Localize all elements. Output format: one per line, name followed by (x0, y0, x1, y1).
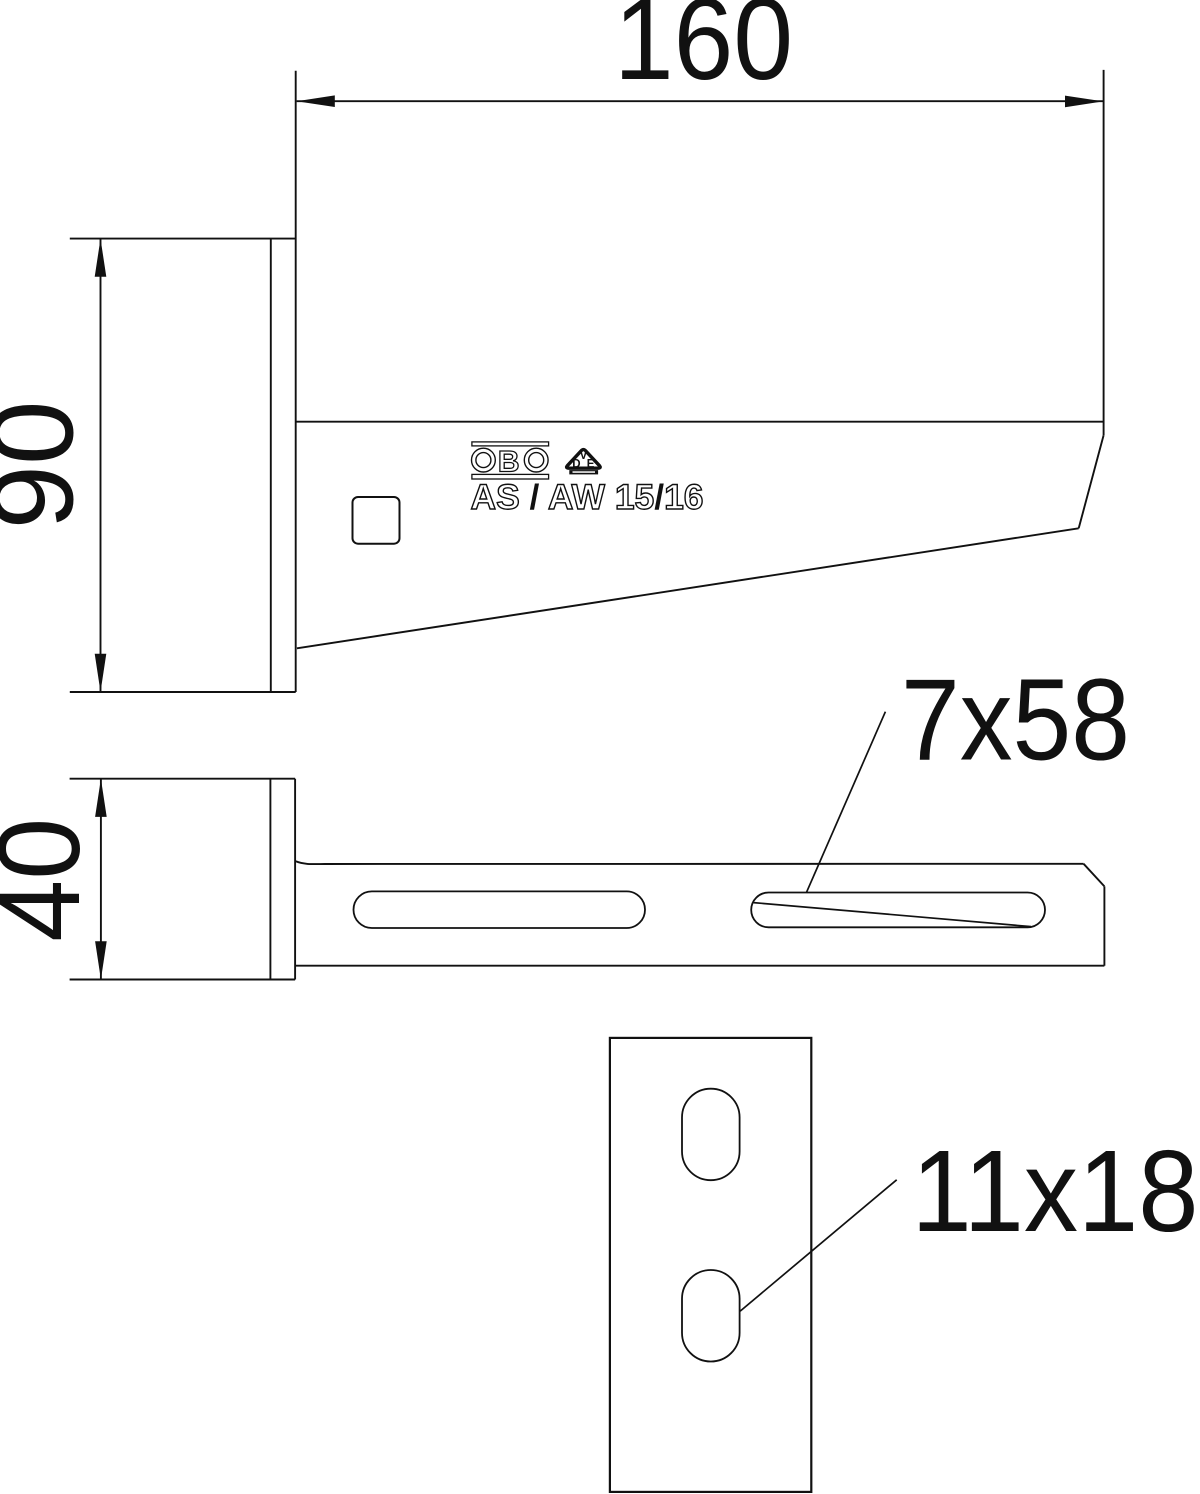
svg-text:D: D (572, 458, 580, 470)
svg-text:AS / AW 15/16: AS / AW 15/16 (471, 478, 704, 517)
svg-text:B: B (498, 445, 520, 478)
svg-text:160: 160 (614, 0, 793, 104)
svg-text:40: 40 (0, 818, 104, 942)
svg-text:11x18: 11x18 (912, 1126, 1199, 1256)
svg-text:90: 90 (0, 401, 98, 530)
svg-text:7x58: 7x58 (901, 655, 1130, 785)
svg-text:E: E (587, 458, 595, 470)
